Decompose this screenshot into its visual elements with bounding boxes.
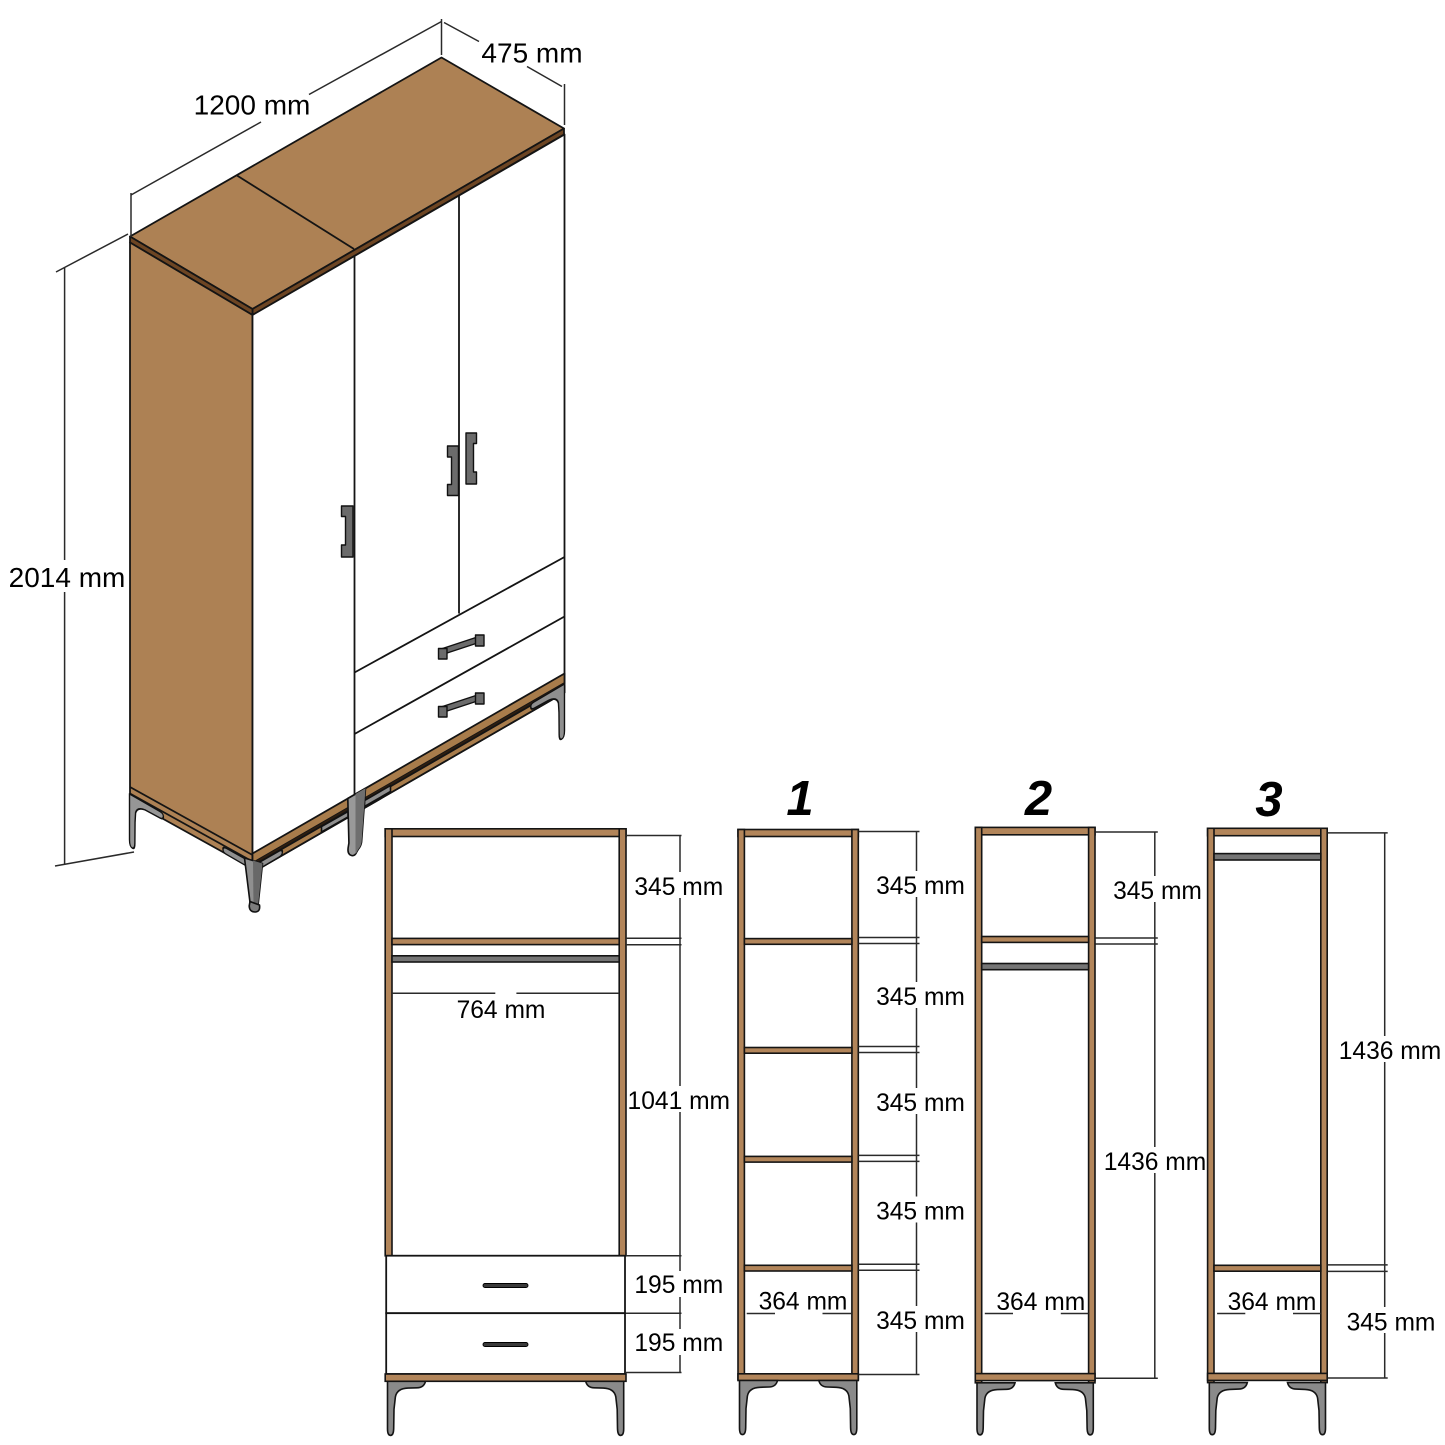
svg-text:345 mm: 345 mm xyxy=(876,873,965,900)
svg-text:1436 mm: 1436 mm xyxy=(1104,1149,1207,1176)
svg-text:345 mm: 345 mm xyxy=(876,1199,965,1226)
svg-text:2014 mm: 2014 mm xyxy=(9,562,126,593)
svg-text:345 mm: 345 mm xyxy=(876,984,965,1011)
svg-text:195 mm: 195 mm xyxy=(634,1330,723,1357)
svg-text:764 mm: 764 mm xyxy=(457,997,546,1024)
svg-text:3: 3 xyxy=(1255,773,1282,827)
svg-text:475 mm: 475 mm xyxy=(481,38,582,69)
svg-text:345 mm: 345 mm xyxy=(1347,1310,1436,1337)
svg-text:1: 1 xyxy=(786,772,813,826)
svg-text:364 mm: 364 mm xyxy=(996,1289,1085,1316)
svg-text:1200 mm: 1200 mm xyxy=(194,90,311,121)
svg-text:345 mm: 345 mm xyxy=(634,874,723,901)
svg-text:345 mm: 345 mm xyxy=(876,1308,965,1335)
svg-text:1436 mm: 1436 mm xyxy=(1339,1038,1442,1065)
svg-text:364 mm: 364 mm xyxy=(759,1289,848,1316)
svg-text:345 mm: 345 mm xyxy=(876,1090,965,1117)
svg-text:195 mm: 195 mm xyxy=(634,1272,723,1299)
svg-text:1041 mm: 1041 mm xyxy=(628,1088,731,1115)
svg-text:345 mm: 345 mm xyxy=(1113,878,1202,905)
svg-text:2: 2 xyxy=(1024,772,1052,826)
svg-text:364 mm: 364 mm xyxy=(1228,1289,1317,1316)
